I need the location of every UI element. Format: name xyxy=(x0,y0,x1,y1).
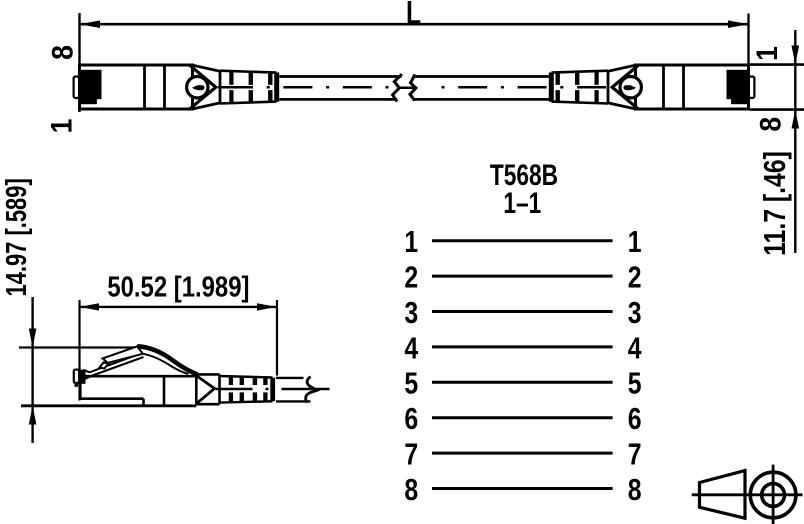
svg-text:2: 2 xyxy=(628,260,642,294)
svg-text:11.7 [.46]: 11.7 [.46] xyxy=(757,151,791,256)
svg-text:8: 8 xyxy=(404,472,418,506)
svg-text:6: 6 xyxy=(404,401,418,435)
svg-text:5: 5 xyxy=(404,366,418,400)
svg-text:2: 2 xyxy=(404,260,418,294)
svg-text:7: 7 xyxy=(404,437,418,471)
svg-text:8: 8 xyxy=(754,117,787,132)
svg-text:5: 5 xyxy=(628,366,642,400)
svg-text:50.52 [1.989]: 50.52 [1.989] xyxy=(107,270,249,303)
svg-text:1: 1 xyxy=(628,224,642,258)
svg-text:3: 3 xyxy=(628,295,642,329)
svg-text:L: L xyxy=(406,0,421,32)
svg-text:1: 1 xyxy=(404,224,418,258)
svg-text:1–1: 1–1 xyxy=(503,186,541,220)
svg-text:4: 4 xyxy=(628,331,642,365)
svg-text:3: 3 xyxy=(404,295,418,329)
svg-text:6: 6 xyxy=(628,401,642,435)
svg-text:1: 1 xyxy=(751,46,784,61)
svg-text:7: 7 xyxy=(628,437,642,471)
svg-text:14.97 [.589]: 14.97 [.589] xyxy=(1,178,33,296)
svg-text:8: 8 xyxy=(628,472,642,506)
svg-text:1: 1 xyxy=(45,119,78,134)
svg-text:8: 8 xyxy=(46,45,79,60)
svg-text:4: 4 xyxy=(404,331,418,365)
